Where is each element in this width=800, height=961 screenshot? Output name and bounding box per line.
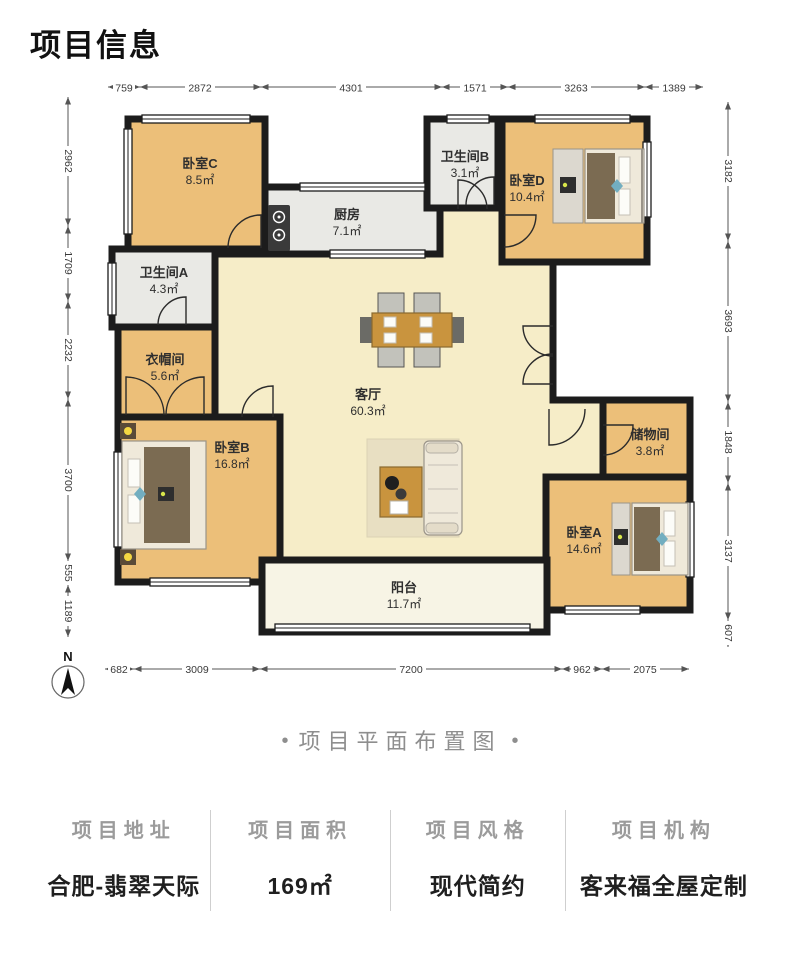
info-value-organization: 客来福全屋定制 (566, 867, 762, 901)
dimension-label: 2232 (62, 338, 74, 362)
north-label: N (63, 649, 72, 664)
room-name-label: 厨房 (334, 207, 360, 222)
room-balcony (262, 560, 547, 632)
dimension-label: 1389 (662, 83, 686, 95)
info-value-area: 169㎡ (211, 867, 390, 901)
dimension-label: 607 (722, 624, 734, 642)
room-area-label: 16.8㎡ (214, 457, 249, 471)
dimensions-right: 3182 3693 1848 3137 607 (722, 102, 735, 647)
room-name-label: 卧室A (566, 525, 602, 540)
room-area-label: 11.7㎡ (387, 597, 421, 611)
room-name-label: 储物间 (629, 427, 669, 442)
info-value-address: 合肥-翡翠天际 (38, 867, 210, 901)
kitchen-stove (268, 205, 290, 251)
dimension-label: 1848 (722, 430, 734, 454)
bed-bedroom-d (553, 149, 644, 223)
room-name-label: 客厅 (355, 387, 381, 402)
dimension-label: 3009 (185, 664, 209, 676)
room-name-label: 卧室B (214, 440, 249, 455)
floor-plan-container: 卧室C 8.5㎡ 卫生间A 4.3㎡ 衣帽间 5.6㎡ 卧室B 16.8㎡ 厨房… (0, 67, 800, 712)
dimension-label: 3693 (722, 309, 734, 333)
dimension-label: 2962 (62, 149, 74, 173)
room-area-label: 4.3㎡ (150, 282, 179, 296)
info-value-style: 现代简约 (391, 867, 565, 901)
dimension-label: 2872 (188, 83, 212, 95)
room-area-label: 5.6㎡ (151, 369, 180, 383)
room-area-label: 7.1㎡ (333, 224, 362, 238)
dimension-label: 3182 (722, 159, 734, 183)
info-col-organization: 项目机构 客来福全屋定制 (565, 810, 762, 911)
room-name-label: 衣帽间 (145, 352, 184, 367)
dimensions-left: 2962 1709 2232 3700 555 1189 (62, 97, 75, 637)
info-label-area: 项目面积 (211, 814, 390, 843)
dimension-label: 555 (62, 564, 74, 582)
room-area-label: 8.5㎡ (186, 173, 215, 187)
bed-bedroom-a (612, 503, 688, 575)
info-label-address: 项目地址 (38, 814, 210, 843)
caption-dot-right: • (512, 730, 519, 752)
info-label-style: 项目风格 (391, 814, 565, 843)
room-name-label: 卫生间A (140, 265, 189, 280)
dimensions-bottom: 682 3009 7200 962 2075 (105, 663, 689, 676)
page-title: 项目信息 (30, 28, 162, 63)
caption-text: 项目平面布置图 (298, 729, 501, 754)
dimension-label: 682 (110, 664, 128, 676)
dimension-label: 1189 (62, 600, 74, 623)
dimensions-top: 759 2872 4301 1571 3263 1389 (108, 81, 703, 95)
dimension-label: 3263 (564, 83, 588, 95)
caption-dot-left: • (281, 730, 288, 752)
room-area-label: 3.8㎡ (636, 444, 665, 458)
info-label-organization: 项目机构 (566, 814, 762, 843)
room-area-label: 3.1㎡ (451, 166, 480, 180)
room-area-label: 60.3㎡ (350, 404, 385, 418)
room-name-label: 阳台 (391, 580, 417, 595)
north-arrow: N (52, 649, 84, 698)
room-name-label: 卫生间B (441, 149, 489, 164)
dimension-label: 1709 (62, 251, 74, 275)
dimension-label: 2075 (633, 664, 657, 676)
info-col-style: 项目风格 现代简约 (390, 810, 565, 911)
info-col-area: 项目面积 169㎡ (210, 810, 390, 911)
room-name-label: 卧室D (509, 173, 544, 188)
room-name-label: 卧室C (182, 156, 218, 171)
dimension-label: 3700 (62, 468, 74, 492)
dimension-label: 4301 (339, 83, 363, 95)
dimension-label: 1571 (463, 83, 487, 95)
room-area-label: 14.6㎡ (566, 542, 601, 556)
info-col-address: 项目地址 合肥-翡翠天际 (38, 810, 210, 911)
bed-bedroom-b (120, 423, 206, 565)
floor-plan-svg: 卧室C 8.5㎡ 卫生间A 4.3㎡ 衣帽间 5.6㎡ 卧室B 16.8㎡ 厨房… (0, 67, 800, 712)
plan-caption: •项目平面布置图• (0, 724, 800, 756)
dimension-label: 962 (573, 664, 591, 676)
dimension-label: 3137 (722, 539, 734, 563)
dimension-label: 7200 (399, 664, 423, 676)
dimension-label: 759 (115, 83, 133, 95)
sofa-set (367, 439, 462, 537)
page-header: 项目信息 (0, 0, 800, 67)
room-area-label: 10.4㎡ (509, 190, 544, 204)
project-info-section: 项目地址 合肥-翡翠天际 项目面积 169㎡ 项目风格 现代简约 项目机构 客来… (38, 810, 762, 911)
